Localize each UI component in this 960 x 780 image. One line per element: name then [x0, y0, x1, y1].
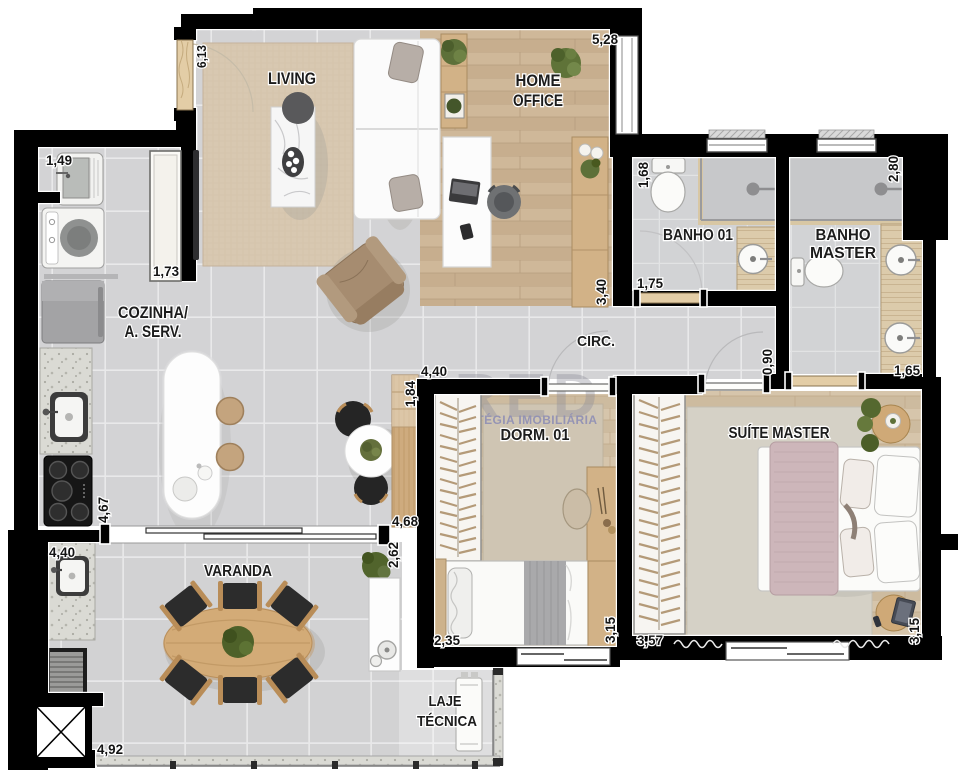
svg-text:MASTER: MASTER: [810, 245, 876, 262]
svg-text:BANHO 01: BANHO 01: [663, 227, 733, 244]
svg-text:4,40: 4,40: [49, 544, 75, 560]
svg-text:A. SERV.: A. SERV.: [125, 322, 182, 341]
svg-text:5,28: 5,28: [592, 31, 618, 47]
svg-text:COZINHA/: COZINHA/: [118, 303, 188, 322]
svg-text:LIVING: LIVING: [268, 69, 316, 88]
svg-text:3,15: 3,15: [906, 618, 922, 644]
svg-text:CIRC.: CIRC.: [577, 333, 615, 350]
svg-text:HOME: HOME: [516, 71, 561, 90]
svg-text:1,65: 1,65: [894, 362, 920, 378]
svg-text:DORM. 01: DORM. 01: [501, 427, 570, 444]
svg-text:4,68: 4,68: [392, 513, 418, 529]
svg-text:OFFICE: OFFICE: [513, 91, 563, 110]
svg-text:4,67: 4,67: [95, 497, 111, 523]
svg-text:1,84: 1,84: [402, 381, 418, 407]
svg-text:SUÍTE MASTER: SUÍTE MASTER: [729, 423, 830, 442]
svg-text:1,68: 1,68: [635, 162, 651, 188]
svg-text:BANHO: BANHO: [816, 227, 871, 244]
svg-text:LAJE: LAJE: [429, 693, 462, 710]
svg-text:1,49: 1,49: [46, 152, 72, 168]
svg-text:0,90: 0,90: [759, 349, 775, 375]
svg-text:6,13: 6,13: [194, 45, 209, 68]
svg-text:1,75: 1,75: [637, 275, 663, 291]
svg-text:3,57: 3,57: [637, 632, 663, 648]
svg-text:4,92: 4,92: [97, 741, 123, 757]
svg-text:4,40: 4,40: [421, 363, 447, 379]
svg-text:TÉCNICA: TÉCNICA: [417, 713, 477, 730]
svg-text:2,80: 2,80: [885, 156, 901, 182]
svg-text:3,40: 3,40: [593, 279, 609, 305]
svg-text:VARANDA: VARANDA: [204, 563, 272, 580]
svg-text:1,73: 1,73: [153, 263, 179, 279]
svg-text:2,62: 2,62: [385, 542, 401, 568]
svg-text:2,35: 2,35: [434, 632, 460, 648]
svg-text:3,15: 3,15: [602, 617, 618, 643]
